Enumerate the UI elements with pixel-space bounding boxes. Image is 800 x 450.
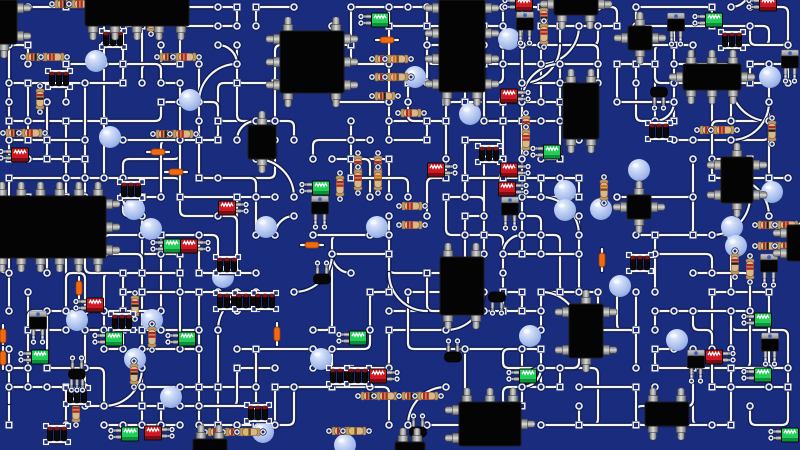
- led-red: [428, 163, 459, 177]
- trace-pad-ring: [538, 308, 544, 314]
- trace-pad-ring: [614, 194, 620, 200]
- trace-pad-ring: [633, 80, 639, 86]
- trace-pad-ring: [215, 23, 221, 29]
- capacitor-tip: [47, 427, 52, 430]
- led-pin: [6, 150, 12, 154]
- resistor-band: [783, 221, 785, 228]
- ic-body: [280, 31, 344, 93]
- trace-pad-ring: [196, 403, 202, 409]
- trace-pad-ring: [6, 365, 12, 371]
- resistor-band: [768, 129, 775, 131]
- trace-pad-ring: [253, 384, 259, 390]
- resistor-band: [600, 185, 607, 187]
- resistor-band: [768, 126, 775, 128]
- ic-body: [627, 195, 651, 219]
- trace-pad-ring: [177, 289, 183, 295]
- fuse-body: [599, 253, 605, 267]
- ic-pin: [508, 396, 518, 403]
- lead-pad: [17, 131, 21, 135]
- ic-pin: [274, 80, 281, 90]
- trace-pad-square: [158, 99, 164, 105]
- ic-pin: [132, 26, 142, 33]
- trace-pad-ring: [538, 422, 544, 428]
- led-red: [501, 89, 532, 103]
- diode-pin: [412, 420, 415, 427]
- trace-pad-ring: [25, 365, 31, 371]
- resistor-band: [374, 161, 381, 163]
- trace-pad-ring: [101, 346, 107, 352]
- ic-pin: [93, 190, 103, 197]
- solder-ball: [123, 198, 145, 220]
- resistor: [169, 53, 202, 61]
- trace-pad-ring: [519, 384, 525, 390]
- lead-pad: [372, 394, 376, 398]
- resistor-band: [410, 202, 412, 209]
- ic-pin: [453, 405, 460, 415]
- lead-pad: [491, 311, 495, 315]
- lead-pad: [300, 189, 304, 193]
- lead-pad: [423, 223, 427, 227]
- led-base: [706, 23, 722, 27]
- lead-pad: [109, 429, 113, 433]
- trace-pad-square: [196, 270, 202, 276]
- lead-pad: [93, 340, 97, 344]
- ball-highlight: [370, 220, 376, 224]
- ic-pin: [585, 15, 595, 22]
- solder-ball: [140, 218, 162, 240]
- trace-pad-square: [424, 137, 430, 143]
- transistor-body: [762, 339, 779, 351]
- led-red: [370, 369, 401, 383]
- trace-pad-ring: [690, 156, 696, 162]
- lead-pad: [19, 358, 23, 362]
- trace-pad-square: [196, 137, 202, 143]
- fuse-body: [169, 169, 183, 175]
- led-pin: [518, 165, 524, 169]
- lead-pad: [396, 94, 400, 98]
- trace-pad-square: [139, 327, 145, 333]
- lead-pad: [784, 79, 788, 83]
- lead-pad: [542, 45, 546, 49]
- lead-pad: [695, 128, 699, 132]
- lead-pad: [763, 283, 767, 287]
- ic-pin: [74, 190, 84, 197]
- lead-pad: [397, 394, 401, 398]
- lead-pad: [0, 150, 3, 154]
- lead-pad: [423, 204, 427, 208]
- resistor: [37, 53, 70, 61]
- led-pin: [307, 189, 313, 193]
- led-pin: [366, 15, 372, 19]
- ic-pin: [471, 251, 481, 258]
- capacitor-tip: [63, 72, 68, 75]
- ic-pin: [0, 258, 7, 265]
- trace-pad-ring: [481, 251, 487, 257]
- lead-pad: [397, 204, 401, 208]
- diode-pin: [447, 345, 450, 352]
- ic-pin: [634, 219, 644, 226]
- ic-pin: [781, 228, 788, 238]
- resistor-band: [72, 407, 79, 409]
- transistor-hole: [508, 198, 512, 202]
- ic-pin: [398, 436, 408, 443]
- led-green: [336, 331, 367, 345]
- led-base: [145, 436, 161, 440]
- resistor-band: [181, 53, 183, 60]
- solder-ball: [459, 103, 481, 125]
- capacitor-tip: [217, 294, 222, 297]
- resistor: [381, 55, 414, 63]
- trace-pad-ring: [177, 422, 183, 428]
- trace-pad-square: [25, 80, 31, 86]
- trace-pad-ring: [557, 80, 563, 86]
- lead-pad: [524, 111, 528, 115]
- trace-pad-ring: [785, 365, 791, 371]
- trace-pad-ring: [766, 99, 772, 105]
- trace-pad-square: [462, 137, 468, 143]
- lead-pad: [359, 21, 363, 25]
- ball-highlight: [502, 32, 508, 36]
- ic-pin: [586, 77, 596, 84]
- ic-body: [459, 402, 521, 446]
- lead-pad: [370, 57, 374, 61]
- ball-highlight: [70, 313, 76, 317]
- lead-pad: [709, 128, 713, 132]
- trace-pad-ring: [614, 99, 620, 105]
- ball-highlight: [729, 239, 735, 243]
- ic-pin: [274, 57, 281, 67]
- lead-pad: [338, 197, 342, 201]
- led-red: [499, 182, 530, 196]
- ball-body: [759, 66, 781, 88]
- trace-pad-ring: [253, 194, 259, 200]
- trace-pad-ring: [139, 384, 145, 390]
- ball-highlight: [259, 220, 265, 224]
- lead-pad: [50, 2, 54, 6]
- ic-pin: [55, 258, 65, 265]
- circuit-board: [0, 0, 800, 450]
- trace-pad-square: [519, 251, 525, 257]
- ic-pin: [257, 119, 267, 126]
- resistor-band: [130, 372, 137, 374]
- trace-pad-square: [101, 118, 107, 124]
- capacitor-tip: [119, 315, 124, 318]
- trace-pad-ring: [139, 80, 145, 86]
- led-pin: [173, 340, 179, 344]
- trace-pad-square: [500, 118, 506, 124]
- capacitor-tip: [103, 32, 108, 35]
- trace-pad-ring: [462, 232, 468, 238]
- trace-pad-ring: [158, 42, 164, 48]
- trace-pad-ring: [291, 137, 297, 143]
- transistor-body: [668, 19, 685, 31]
- led-pin: [723, 358, 729, 362]
- ic-chip: [0, 182, 120, 272]
- fuse: [376, 37, 398, 43]
- capacitor-tip: [121, 183, 126, 186]
- capacitor-tip: [630, 256, 635, 259]
- ball-body: [519, 325, 541, 347]
- trace-pad-ring: [576, 289, 582, 295]
- resistor: [368, 92, 401, 100]
- trace-pad-square: [424, 118, 430, 124]
- trace-pad-ring: [519, 346, 525, 352]
- fuse: [0, 347, 6, 369]
- trace-pad-square: [63, 156, 69, 162]
- ball-highlight: [338, 438, 344, 442]
- led-base: [501, 173, 517, 177]
- ic-pin: [176, 26, 186, 33]
- trace-pad-ring: [329, 251, 335, 257]
- lead-pad: [413, 394, 417, 398]
- trace-pad-square: [785, 384, 791, 390]
- trace-pad-ring: [728, 118, 734, 124]
- lead-pad: [773, 223, 777, 227]
- resistor-band: [396, 73, 398, 80]
- resistor-band: [522, 138, 529, 140]
- fuse-body: [151, 149, 165, 155]
- led-pin: [518, 91, 524, 95]
- capacitor-tip: [248, 406, 253, 409]
- trace-pad-square: [519, 175, 525, 181]
- ic-pin: [686, 90, 696, 97]
- lead-pad: [150, 322, 154, 326]
- trace-pad-ring: [500, 270, 506, 276]
- led-pin: [749, 370, 755, 374]
- resistor: [148, 320, 156, 353]
- lead-pad: [132, 385, 136, 389]
- resistor-band: [337, 427, 339, 434]
- resistor-band: [705, 126, 707, 133]
- trace-pad-ring: [44, 384, 50, 390]
- transistor-body: [688, 356, 705, 368]
- solder-ball: [179, 89, 201, 111]
- led-base: [516, 7, 532, 11]
- lead-pad: [323, 225, 327, 229]
- lead-pad: [542, 19, 546, 23]
- led-base: [106, 342, 122, 346]
- capacitor-tip: [54, 427, 59, 430]
- capacitor-bank: [214, 255, 241, 276]
- capacitor-tip: [722, 33, 727, 36]
- led-green: [768, 428, 799, 442]
- trace-pad-ring: [747, 308, 753, 314]
- lead-pad: [747, 5, 751, 9]
- led-pin: [749, 315, 755, 319]
- lead-pad: [753, 244, 757, 248]
- ic-pin: [16, 190, 26, 197]
- lead-pad: [507, 377, 511, 381]
- resistor: [130, 357, 138, 390]
- led-red: [746, 0, 777, 11]
- ic-pin: [462, 396, 472, 403]
- resistor-band: [600, 188, 607, 190]
- trace-pad-square: [253, 4, 259, 10]
- ic-pin: [676, 396, 686, 403]
- capacitor-bank: [627, 253, 654, 274]
- lead-pad: [206, 241, 210, 245]
- lead-pad: [513, 226, 517, 230]
- led-pin: [445, 165, 451, 169]
- lead-pad: [773, 362, 777, 366]
- trace-pad-square: [367, 289, 373, 295]
- led-pin: [100, 334, 106, 338]
- led-base: [755, 378, 771, 382]
- ic-pin: [36, 258, 46, 265]
- trace-pad-square: [44, 156, 50, 162]
- lead-pad: [693, 21, 697, 25]
- resistor-band: [385, 392, 387, 399]
- trace-pad-square: [25, 137, 31, 143]
- trace-pad-ring: [709, 156, 715, 162]
- resistor: [411, 392, 444, 400]
- diode-pin: [81, 379, 84, 386]
- lead-pad: [41, 340, 45, 344]
- ic-pin: [566, 77, 576, 84]
- resistor: [768, 114, 776, 147]
- ic-pin: [433, 3, 440, 13]
- trace-pad-ring: [6, 99, 12, 105]
- ball-body: [85, 50, 107, 72]
- trace-pad-square: [234, 4, 240, 10]
- led-red: [73, 298, 104, 312]
- resistor-band: [540, 13, 547, 15]
- trace-pad-ring: [728, 384, 734, 390]
- ic-pin: [707, 90, 717, 97]
- trace-pad-square: [652, 232, 658, 238]
- trace-pad-ring: [652, 308, 658, 314]
- trace-pad-ring: [576, 232, 582, 238]
- lead-pad: [71, 356, 75, 360]
- lead-pad: [396, 111, 400, 115]
- transistor-body: [30, 317, 47, 329]
- lead-pad: [38, 110, 42, 114]
- ic-body: [248, 125, 276, 159]
- trace-pad-square: [633, 384, 639, 390]
- transistor-hole: [767, 255, 771, 259]
- capacitor-bank: [44, 424, 71, 445]
- ic-pin: [548, 0, 555, 9]
- trace-pad-ring: [177, 346, 183, 352]
- solder-ball: [519, 325, 541, 347]
- ic-pin: [485, 3, 492, 13]
- trace-pad-ring: [272, 422, 278, 428]
- resistor-band: [407, 221, 409, 228]
- trace-pad-square: [196, 384, 202, 390]
- trace-pad-ring: [766, 384, 772, 390]
- trace-pad-square: [6, 175, 12, 181]
- trace-pad-ring: [120, 346, 126, 352]
- resistor-band: [407, 202, 409, 209]
- trace-pad-ring: [538, 251, 544, 257]
- ic-pin: [676, 426, 686, 433]
- ic-pin: [732, 151, 742, 158]
- ic-pin: [753, 160, 760, 170]
- trace-pad-ring: [234, 23, 240, 29]
- resistor-band: [52, 53, 54, 60]
- capacitor-tip: [56, 72, 61, 75]
- resistor-band: [382, 392, 384, 399]
- capacitor-bank: [476, 144, 503, 165]
- trace-pad-square: [177, 270, 183, 276]
- ic-pin: [154, 26, 164, 33]
- lead-pad: [456, 339, 460, 343]
- solder-ball: [759, 66, 781, 88]
- ball-highlight: [725, 220, 731, 224]
- trace-pad-square: [652, 61, 658, 67]
- lead-pad: [409, 57, 413, 61]
- lead-pad: [531, 147, 535, 151]
- lead-pad: [0, 156, 3, 160]
- lead-pad: [733, 249, 737, 253]
- ic-pin: [433, 29, 440, 39]
- trace-pad-ring: [557, 118, 563, 124]
- trace-pad-ring: [6, 384, 12, 390]
- capacitor-tip: [644, 256, 649, 259]
- ball-highlight: [314, 352, 320, 356]
- trace-pad-square: [519, 289, 525, 295]
- resistor: [395, 202, 428, 210]
- ic-pin: [648, 426, 658, 433]
- trace-pad-ring: [63, 175, 69, 181]
- fuse: [76, 277, 82, 299]
- resistor-band: [248, 428, 250, 435]
- resistor: [354, 163, 362, 196]
- ic-pin: [472, 92, 482, 99]
- resistor-band: [27, 129, 29, 136]
- trace-pad-ring: [500, 251, 506, 257]
- fuse-body: [380, 37, 394, 43]
- trace-pad-square: [386, 327, 392, 333]
- trace-pad-ring: [633, 4, 639, 10]
- lead-pad: [74, 300, 78, 304]
- trace-pad-ring: [82, 80, 88, 86]
- led-base: [179, 342, 195, 346]
- trace-pad-ring: [728, 4, 734, 10]
- resistor-band: [383, 92, 385, 99]
- diode-body: [445, 352, 462, 362]
- solder-ball: [554, 199, 576, 221]
- trace-pad-square: [120, 80, 126, 86]
- led-pin: [307, 183, 313, 187]
- lead-pad: [356, 394, 360, 398]
- led-green: [299, 181, 330, 195]
- resistor: [15, 129, 48, 137]
- resistor-band: [522, 135, 529, 137]
- trace-pad-ring: [576, 384, 582, 390]
- resistor-band: [11, 129, 13, 136]
- led-pin: [518, 97, 524, 101]
- trace-pad-ring: [386, 308, 392, 314]
- trace-pad-ring: [215, 42, 221, 48]
- capacitor-tip: [736, 33, 741, 36]
- lead-pad: [733, 275, 737, 279]
- trace-pad-square: [747, 61, 753, 67]
- trace-pad-ring: [386, 4, 392, 10]
- trace-pad-ring: [386, 194, 392, 200]
- trace-pad-square: [348, 175, 354, 181]
- ball-highlight: [183, 93, 189, 97]
- ball-highlight: [670, 333, 676, 337]
- fuse: [599, 249, 605, 271]
- lead-pad: [81, 388, 85, 392]
- resistor-band: [130, 369, 137, 371]
- lead-pad: [168, 132, 172, 136]
- led-pin: [236, 203, 242, 207]
- capacitor-tip: [262, 294, 267, 297]
- resistor-band: [746, 264, 753, 266]
- capacitor-tip: [255, 406, 260, 409]
